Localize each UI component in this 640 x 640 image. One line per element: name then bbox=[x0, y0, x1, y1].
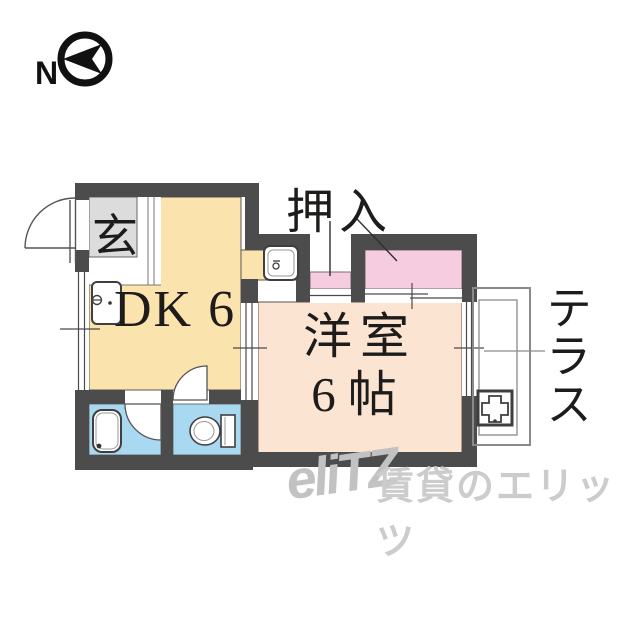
bathtub-icon bbox=[93, 410, 121, 452]
north-label: N bbox=[35, 55, 58, 91]
washbasin-icon bbox=[264, 246, 298, 280]
wall-segment bbox=[241, 400, 258, 455]
terrace-label: テラス bbox=[541, 284, 589, 428]
wall-segment bbox=[351, 234, 365, 302]
small-closet-sliding-door bbox=[310, 289, 351, 303]
north-arrow-icon: N bbox=[35, 35, 109, 91]
wall-segment bbox=[462, 234, 477, 302]
entrance-label: 玄 bbox=[92, 200, 138, 266]
western-room-label: 洋室 6帖 bbox=[258, 308, 462, 424]
wall-segment bbox=[209, 390, 241, 404]
dk-label: DK 6 bbox=[114, 280, 236, 339]
wall-segment bbox=[75, 183, 259, 197]
wall-segment bbox=[241, 279, 258, 303]
washing-machine-pan-icon bbox=[478, 391, 512, 425]
floorplan-page: N 玄 DK 6 押入 洋室 6帖 テラス eliTZ 賃貸のエリッツ bbox=[0, 0, 640, 640]
terrace-sliding-window bbox=[454, 302, 545, 396]
wall-segment bbox=[89, 390, 125, 404]
wall-segment bbox=[75, 183, 89, 200]
large-closet-floor bbox=[365, 250, 462, 289]
closet-label: 押入 bbox=[286, 172, 392, 242]
watermark-text: 賃貸のエリッツ bbox=[376, 455, 640, 565]
wall-segment bbox=[75, 455, 253, 470]
closet-floor bbox=[310, 250, 462, 289]
wall-segment bbox=[75, 250, 89, 272]
wall-segment bbox=[75, 390, 89, 470]
western-room-size: 6帖 bbox=[258, 366, 462, 424]
wall-segment bbox=[161, 390, 173, 455]
western-room-name: 洋室 bbox=[258, 308, 462, 366]
toilet-icon bbox=[190, 415, 235, 447]
